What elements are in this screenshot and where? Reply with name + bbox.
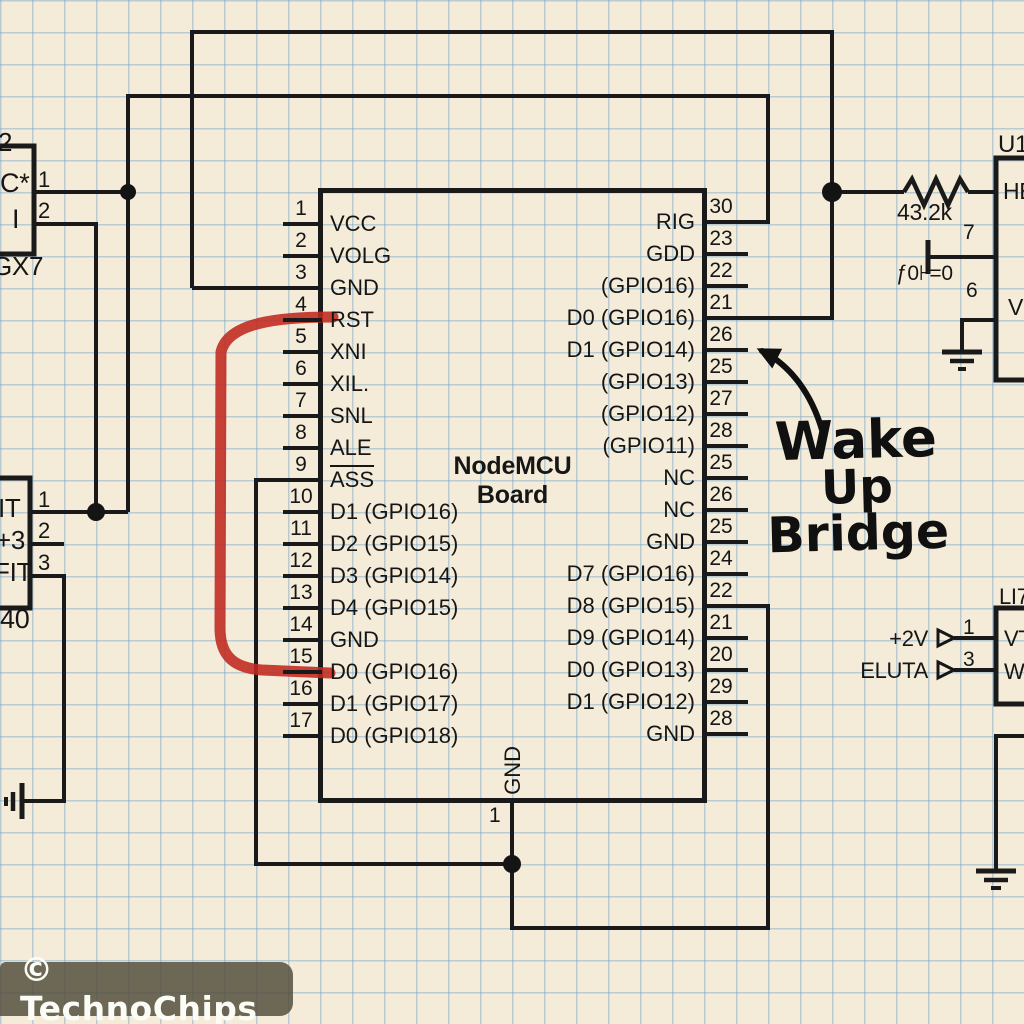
pin-row: 28GND [518,706,748,742]
pin-number: 23 [703,227,739,251]
conn-mid-left-pin1: 1 [38,487,50,513]
pin-stub [704,348,748,352]
pin-row: 21D0 (GPIO16) [518,290,748,326]
pin-row: 23GDD [518,226,748,262]
pin-stub [283,350,322,354]
u1-label-top: HE [1003,178,1024,205]
pin-stub [283,638,322,642]
pin-row: 3GND [283,260,553,296]
schematic-canvas: 1VCC2VOLG3GND4RST5XNI6XIL.7SNL8ALE9ASS10… [0,0,1024,1024]
pin-stub [704,540,748,544]
pin-row: 12D3 (GPIO14) [283,548,553,584]
pin-row: 29D1 (GPIO12) [518,674,748,710]
u1-ref: U1 [998,131,1024,159]
conn-mid-left-label3: FIT [0,557,32,588]
u1-pin6-number: 6 [966,279,977,303]
conn-top-left-box [0,146,34,254]
u1-label-bottom: V [1008,294,1023,321]
pin-row: 25(GPIO13) [518,354,748,390]
pin-row: 16D1 (GPIO17) [283,676,553,712]
conn-mid-left-part: 40 [0,604,29,635]
pin-row: 11D2 (GPIO15) [283,516,553,552]
pin-number: 15 [283,645,319,669]
pin-label: D0 (GPIO18) [330,723,458,749]
pin-number: 9 [283,453,319,477]
pin-stub [283,606,322,610]
pin-number: 16 [283,677,319,701]
conn-mid-left-pin3: 3 [38,550,50,576]
pin-stub [704,252,748,256]
board-title-line2: Board [420,481,605,510]
pin-label: GND [646,721,695,747]
li7-signal-1: +2V [858,626,928,652]
pin-row: 25GND [518,514,748,550]
li7-pin3-number: 3 [963,648,974,672]
conn-top-left-ref: 2 [0,127,12,158]
wake-up-bridge-note: Wake Up Bridge [750,413,964,560]
pin-row: 27(GPIO12) [518,386,748,422]
pin-stub [704,476,748,480]
pin-stub [283,510,322,514]
pin-number: 30 [703,195,739,219]
conn-mid-left-label2: +3 [0,525,25,556]
pin-number: 29 [703,675,739,699]
pin-row: 13D4 (GPIO15) [283,580,553,616]
pin-stub [704,412,748,416]
conn-top-left-label1: C* [0,168,29,199]
pin-row: 14GND [283,612,553,648]
pin-stub [283,286,322,290]
pin-row: 30RIG [518,194,748,230]
pin-number: 6 [283,357,319,381]
pin-number: 24 [703,547,739,571]
pin-stub [704,220,748,224]
watermark-badge: © TechnoChips [0,962,293,1016]
conn-mid-left-pin2: 2 [38,518,50,544]
pin-stub [704,572,748,576]
pin-stub [704,636,748,640]
li7-label2: W [1004,659,1024,685]
pin-row: 21D9 (GPIO14) [518,610,748,646]
li7-pin1-number: 1 [963,616,974,640]
pin-stub [283,734,322,738]
li7-label1: VT [1004,626,1024,652]
pin-number: 8 [283,421,319,445]
pin-number: 14 [283,613,319,637]
pin-row: 20D0 (GPIO13) [518,642,748,678]
pin-stub [704,732,748,736]
li7-signal-arrow-icons [938,630,954,678]
pin-number: 2 [283,229,319,253]
pin-stub [283,382,322,386]
note-line3: Bridge [753,508,964,560]
pin-number: 1 [283,197,319,221]
nodemcu-board-label: NodeMCU Board [420,452,605,510]
pin-row: 26D1 (GPIO14) [518,322,748,358]
bottom-pin-label: GND [500,746,526,795]
pin-stub [283,574,322,578]
pin-number: 26 [703,483,739,507]
pin-number: 22 [703,259,739,283]
pin-number: 21 [703,291,739,315]
pin-stub [704,508,748,512]
pin-row: 1VCC [283,196,553,232]
pin-row: 5XNI [283,324,553,360]
pin-number: 7 [283,389,319,413]
pin-stub [704,316,748,320]
pin-number: 20 [703,643,739,667]
pin-number: 22 [703,579,739,603]
conn-top-left-part: GX7 [0,251,43,282]
pin-row: 2VOLG [283,228,553,264]
pin-row: 22(GPIO16) [518,258,748,294]
pin-number: 26 [703,323,739,347]
pin-number: 17 [283,709,319,733]
pin-number: 25 [703,515,739,539]
pin-stub [283,414,322,418]
pin-stub [283,254,322,258]
pin-row: 24D7 (GPIO16) [518,546,748,582]
pin-number: 25 [703,355,739,379]
conn-top-left-label2: I [12,204,19,235]
pin-stub [283,222,322,226]
conn-top-left-pin2: 2 [38,198,50,224]
pin-stub [704,380,748,384]
pin-number: 11 [283,517,319,541]
pin-number: 3 [283,261,319,285]
capacitor-value: ƒ0⊦=0 [896,261,953,286]
pin-row: 17D0 (GPIO18) [283,708,553,744]
pin-number: 21 [703,611,739,635]
li7-box [996,608,1024,704]
pin-stub [283,446,322,450]
pin-stub [704,284,748,288]
pin-number: 12 [283,549,319,573]
pin-stub [283,318,322,322]
pin-stub [283,542,322,546]
pin-stub [283,478,322,482]
pin-number: 10 [283,485,319,509]
pin-stub [704,700,748,704]
li7-ref: LI7 [999,584,1024,610]
li7-signal-2: ELUTA [845,658,928,684]
conn-mid-left-label1: IT [0,493,21,524]
pin-row: 15D0 (GPIO16) [283,644,553,680]
pin-stub [283,702,322,706]
resistor-value: 43.2k [897,199,952,226]
pin-row: 4RST [283,292,553,328]
pin-stub [283,670,322,674]
pin-row: 22D8 (GPIO15) [518,578,748,614]
pin-row: 28(GPIO11) [518,418,748,454]
u1-pin7-number: 7 [963,221,974,245]
pin-number: 25 [703,451,739,475]
pin-number: 4 [283,293,319,317]
pin-number: 27 [703,387,739,411]
pin-number: 13 [283,581,319,605]
pin-number: 28 [703,419,739,443]
bottom-pin-number: 1 [489,804,500,828]
pin-row: 7SNL [283,388,553,424]
board-title-line1: NodeMCU [420,452,605,481]
pin-number: 5 [283,325,319,349]
conn-top-left-pin1: 1 [38,167,50,193]
pin-row: 8ALE [283,420,553,456]
pin-stub [704,604,748,608]
pin-number: 28 [703,707,739,731]
pin-stub [704,444,748,448]
pin-row: 6XIL. [283,356,553,392]
watermark-text: © TechnoChips [20,950,293,1024]
pin-stub [704,668,748,672]
